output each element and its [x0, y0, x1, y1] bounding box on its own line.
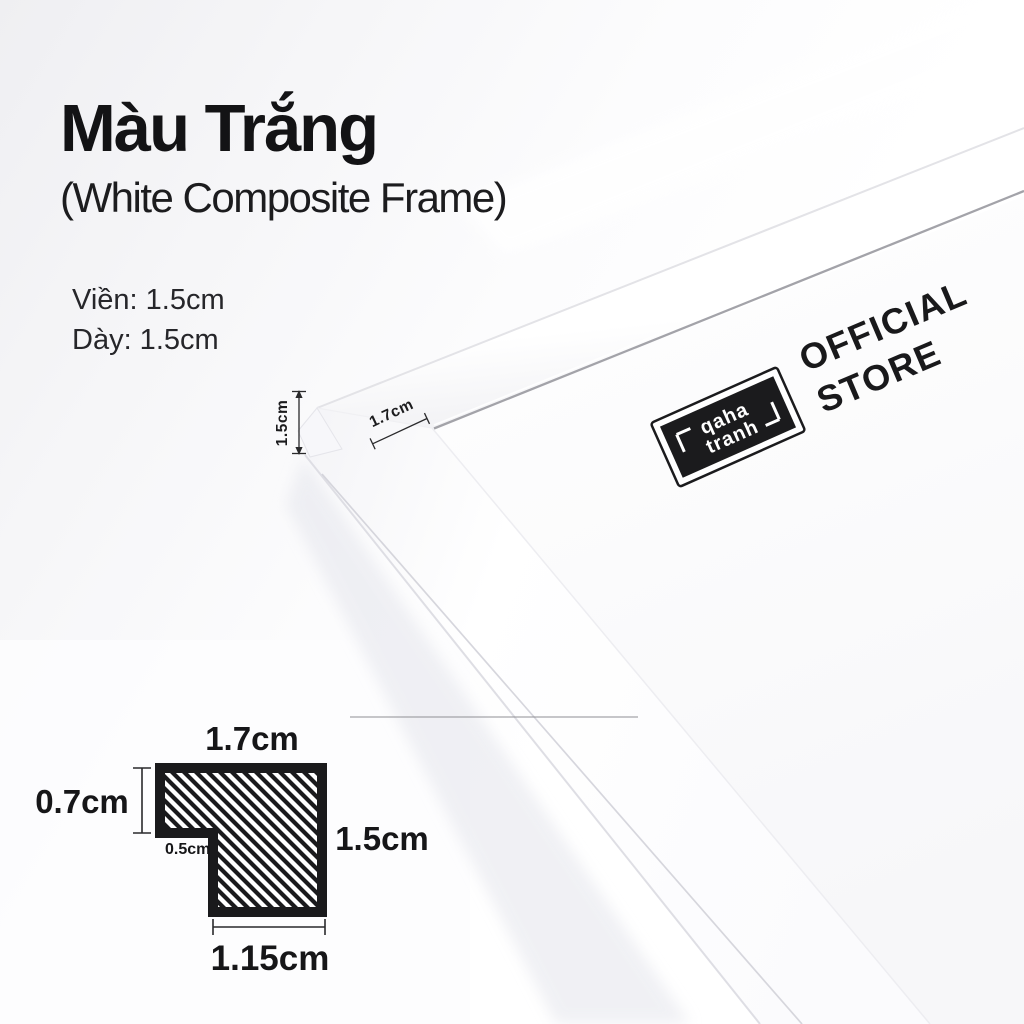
cs-top-width-label: 1.7cm: [205, 720, 299, 757]
cs-step-width-label: 0.5cm: [165, 841, 210, 858]
spec-thickness: Dày: 1.5cm: [72, 320, 225, 360]
page-title: Màu Trắng: [60, 94, 506, 164]
spec-border-width: Viền: 1.5cm: [72, 280, 225, 320]
spec-list: Viền: 1.5cm Dày: 1.5cm: [72, 280, 225, 360]
cs-bottom-width-label: 1.15cm: [211, 939, 330, 978]
cs-left-height-label: 0.7cm: [35, 783, 129, 820]
page-subtitle: (White Composite Frame): [60, 174, 506, 222]
cs-right-height-label: 1.5cm: [335, 820, 429, 857]
title-block: Màu Trắng (White Composite Frame): [60, 94, 506, 222]
thickness-label: 1.5cm: [274, 400, 291, 446]
product-image: 1.5cm 1.7cm qaha tranh OFFICIAL STORE: [0, 0, 1024, 1024]
